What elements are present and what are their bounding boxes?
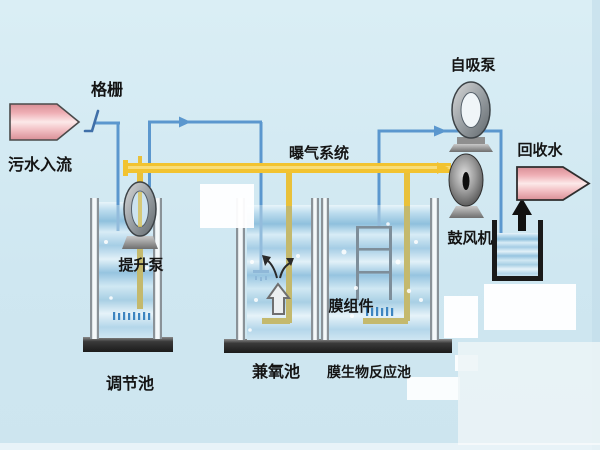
- aeration-system-label: 曝气系统: [289, 144, 349, 162]
- mbr-tank-label: 膜生物反应池: [327, 364, 411, 381]
- lift-pump-label: 提升泵: [118, 256, 163, 274]
- regulating-tank-base: [83, 337, 173, 352]
- diagram-canvas: 格栅 污水入流 提升泵 调节池 曝气系统 兼氧池 膜组件 膜生物反应池 自吸泵 …: [0, 0, 600, 450]
- regulating-tank-label: 调节池: [106, 374, 154, 393]
- facultative-tank-label: 兼氧池: [252, 362, 300, 381]
- process-diagram: 格栅 污水入流 提升泵 调节池 曝气系统 兼氧池 膜组件 膜生物反应池 自吸泵 …: [0, 0, 600, 450]
- lift-pump: [122, 182, 158, 249]
- recycled-water-label: 回收水: [517, 141, 563, 159]
- air-pipe-end-cap: [123, 160, 128, 176]
- screen-label: 格栅: [91, 80, 123, 99]
- self-priming-pump-label: 自吸泵: [450, 56, 495, 74]
- inflow-label: 污水入流: [8, 155, 72, 174]
- membrane-module-label: 膜组件: [328, 297, 373, 315]
- blower-label: 鼓风机: [447, 229, 492, 247]
- bio-tanks-base: [224, 339, 452, 353]
